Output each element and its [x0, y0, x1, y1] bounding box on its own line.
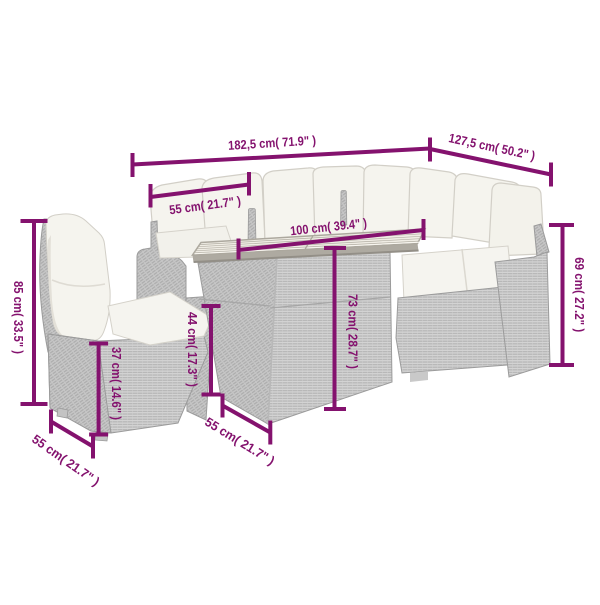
- svg-text:44 cm( 17.3" ): 44 cm( 17.3" ): [185, 312, 200, 387]
- svg-text:73 cm( 28.7" ): 73 cm( 28.7" ): [346, 294, 361, 369]
- svg-text:69 cm( 27.2" ): 69 cm( 27.2" ): [572, 257, 587, 332]
- svg-text:37 cm( 14.6" ): 37 cm( 14.6" ): [109, 347, 124, 420]
- svg-text:85 cm( 33.5" ): 85 cm( 33.5" ): [11, 281, 26, 354]
